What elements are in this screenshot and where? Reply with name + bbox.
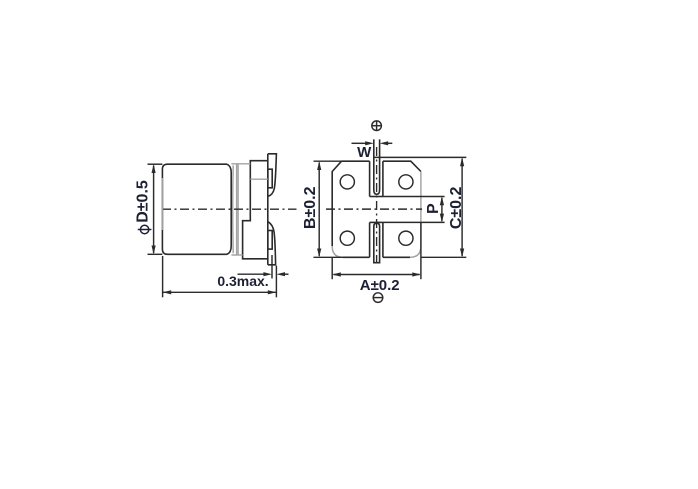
svg-text:B±0.2: B±0.2 bbox=[302, 186, 319, 229]
svg-text:A±0.2: A±0.2 bbox=[360, 277, 400, 294]
svg-text:P: P bbox=[425, 203, 442, 214]
svg-text:0.3max.: 0.3max. bbox=[217, 273, 268, 289]
svg-text:D±0.5: D±0.5 bbox=[135, 180, 152, 223]
svg-text:W: W bbox=[357, 144, 372, 161]
svg-text:C±0.2: C±0.2 bbox=[448, 187, 465, 230]
